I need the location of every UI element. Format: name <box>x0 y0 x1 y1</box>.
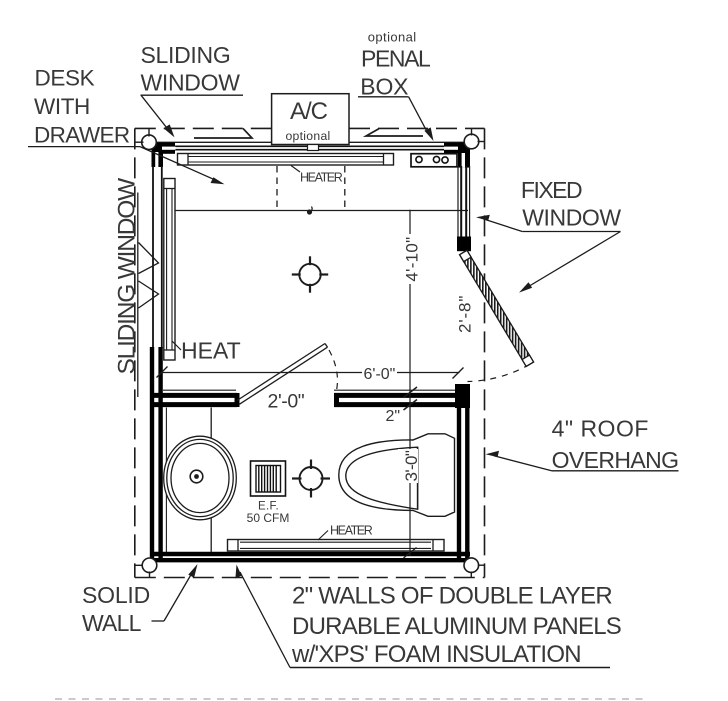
svg-text:50 CFM: 50 CFM <box>247 511 290 525</box>
svg-text:HEATER: HEATER <box>300 171 343 185</box>
svg-text:DURABLE ALUMINUM PANELS: DURABLE ALUMINUM PANELS <box>292 613 621 640</box>
svg-text:A/C: A/C <box>290 98 328 125</box>
svg-text:BOX: BOX <box>360 74 408 100</box>
svg-text:2'-8": 2'-8" <box>456 295 475 333</box>
svg-text:6'-0": 6'-0" <box>364 366 396 383</box>
svg-text:DRAWER: DRAWER <box>34 123 130 148</box>
svg-text:DESK: DESK <box>35 65 95 90</box>
svg-text:2" WALLS OF DOUBLE LAYER: 2" WALLS OF DOUBLE LAYER <box>292 582 612 609</box>
svg-text:SOLID: SOLID <box>82 582 150 608</box>
svg-text:4" ROOF: 4" ROOF <box>552 415 649 441</box>
svg-text:optional: optional <box>368 30 417 45</box>
svg-text:HEAT: HEAT <box>181 338 241 364</box>
svg-text:HEATER: HEATER <box>330 524 373 538</box>
svg-text:optional: optional <box>285 129 330 143</box>
svg-text:2'-0": 2'-0" <box>268 391 305 413</box>
svg-text:FIXED: FIXED <box>521 177 582 203</box>
svg-text:3'-0": 3'-0" <box>402 450 421 481</box>
svg-text:PENAL: PENAL <box>361 46 431 72</box>
svg-text:SLIDING: SLIDING <box>141 42 231 68</box>
svg-text:WINDOW: WINDOW <box>522 205 621 231</box>
svg-text:4'-10": 4'-10" <box>403 236 422 281</box>
svg-text:2": 2" <box>386 408 401 425</box>
svg-text:SLIDING WINDOW: SLIDING WINDOW <box>114 177 141 375</box>
svg-text:w/'XPS' FOAM INSULATION: w/'XPS' FOAM INSULATION <box>291 641 581 668</box>
svg-text:WITH: WITH <box>34 94 90 119</box>
svg-text:OVERHANG: OVERHANG <box>552 447 679 473</box>
svg-text:WALL: WALL <box>82 610 142 636</box>
svg-text:WINDOW: WINDOW <box>141 69 241 95</box>
